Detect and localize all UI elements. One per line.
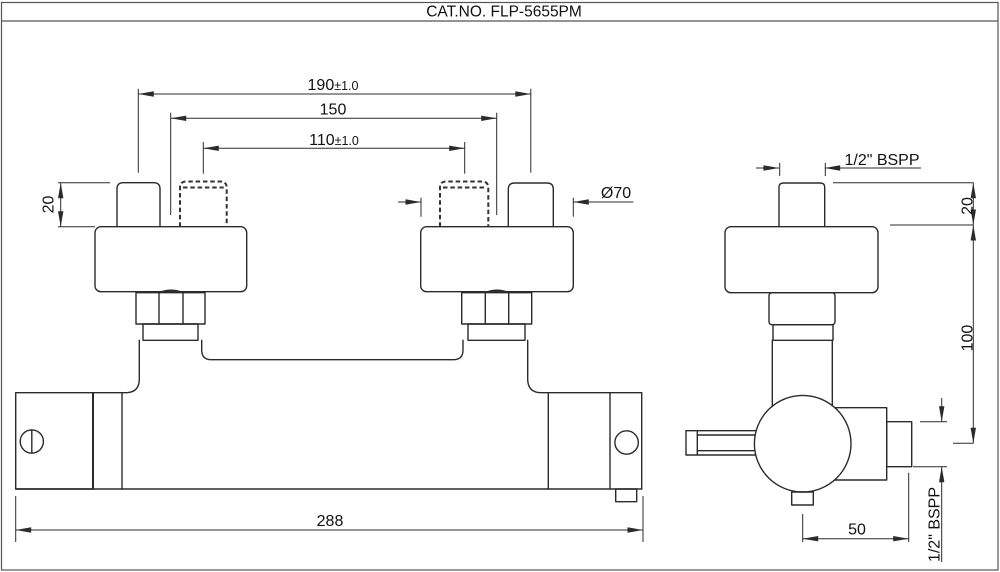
dim-label-50: 50 [848, 522, 866, 539]
bottom-outlet-stub [616, 489, 637, 502]
valve-body-section [754, 395, 851, 492]
dim-label-150: 150 [320, 102, 347, 119]
temperature-end-cap [16, 393, 93, 489]
dim-label-inlet-thread: 1/2" BSPP [844, 152, 919, 169]
technical-drawing: CAT.NO. FLP-5655PM [0, 0, 1000, 572]
dim-label-20-front: 20 [41, 196, 58, 214]
dim-label-20-side: 20 [959, 197, 976, 215]
dim-label-190: 190±1.0 [308, 77, 359, 94]
dim-label-outlet-thread: 1/2" BSPP [927, 487, 944, 562]
dim-label-288: 288 [317, 513, 344, 530]
alternate-position-dashed-connectors [180, 182, 488, 227]
handle-lever [686, 431, 756, 455]
outlet-port [887, 422, 912, 467]
bottom-port-stub [792, 492, 814, 505]
diverter-port [615, 431, 638, 454]
drawing-title: CAT.NO. FLP-5655PM [426, 4, 582, 21]
front-view [16, 182, 642, 502]
side-view [686, 183, 912, 505]
page-border [2, 3, 999, 571]
dim-label-110: 110±1.0 [309, 132, 359, 149]
dim-label-100: 100 [959, 325, 976, 352]
dim-label-flange-diameter: Ø70 [601, 185, 631, 202]
